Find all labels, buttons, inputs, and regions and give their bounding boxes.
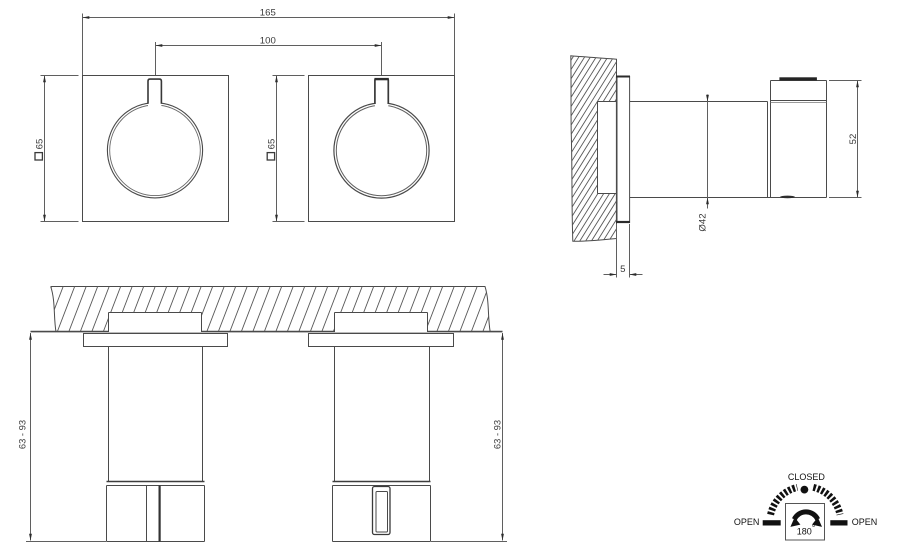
svg-text:Ø42: Ø42 — [697, 213, 708, 231]
svg-text:OPEN: OPEN — [734, 517, 760, 527]
svg-text:CLOSED: CLOSED — [788, 472, 826, 482]
svg-text:°: ° — [812, 523, 815, 533]
svg-text:165: 165 — [260, 7, 276, 18]
svg-text:5: 5 — [620, 264, 625, 275]
svg-text:65: 65 — [34, 139, 45, 150]
svg-text:180: 180 — [797, 526, 812, 536]
svg-text:OPEN: OPEN — [852, 517, 878, 527]
svg-text:63 - 93: 63 - 93 — [16, 420, 27, 449]
svg-text:100: 100 — [260, 35, 276, 46]
svg-text:52: 52 — [848, 134, 859, 145]
svg-text:65: 65 — [267, 139, 278, 150]
svg-text:63 - 93: 63 - 93 — [492, 420, 503, 449]
